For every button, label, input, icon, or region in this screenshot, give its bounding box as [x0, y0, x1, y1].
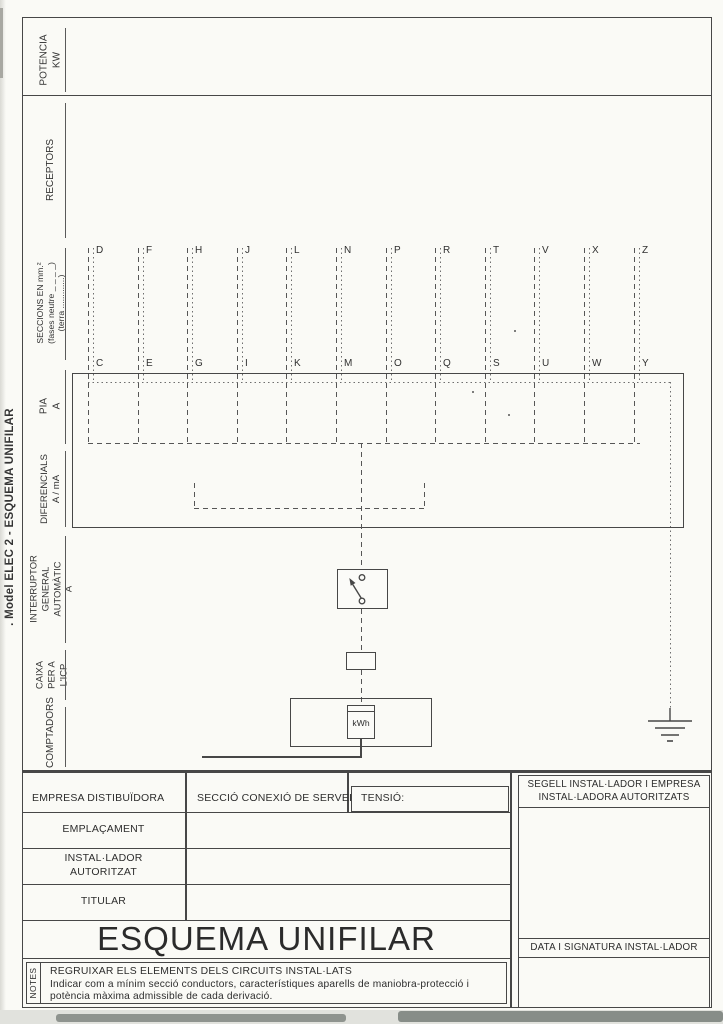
icp-box — [346, 652, 376, 670]
sidebar-bracket — [65, 650, 66, 700]
earth-dotted-line — [391, 248, 392, 382]
circuit-letter: D — [96, 245, 103, 256]
circuit-letter: R — [443, 245, 450, 256]
form-top-border — [22, 770, 712, 773]
service-entry-horizontal-line — [202, 756, 362, 758]
segell-stamp-area — [519, 808, 709, 937]
ground-symbol-icon — [646, 708, 694, 746]
switch-symbol-icon — [338, 570, 386, 607]
installador-autoritzat-label: INSTAL·LADOR AUTORITZAT — [22, 848, 185, 884]
notes-label-divider — [40, 962, 41, 1004]
data-signatura-area — [519, 958, 709, 1006]
circuit-letter: L — [294, 245, 300, 256]
earth-dotted-line — [192, 248, 193, 382]
earth-dotted-line — [242, 248, 243, 382]
differential-bracket-right — [424, 483, 425, 508]
installador-value-area — [186, 849, 510, 883]
sidebar-section-caixa: CAIXA PER A L'ICP — [22, 648, 80, 702]
main-drop-dashed-line — [361, 443, 362, 569]
segell-panel: SEGELL INSTAL·LADOR I EMPRESA INSTAL·LAD… — [518, 775, 710, 1008]
circuit-letter: X — [592, 245, 599, 256]
sidebar-label-caixa: CAIXA PER A L'ICP — [33, 648, 68, 702]
protection-zone-rectangle — [72, 373, 684, 528]
notes-label-wrap: NOTES — [26, 962, 40, 1004]
meter-terminal-line — [348, 706, 374, 712]
earth-dotted-line — [589, 248, 590, 382]
circuit-letter: W — [592, 358, 601, 369]
kwh-meter-label: kWh — [348, 718, 374, 728]
data-signatura-header: DATA I SIGNATURA INSTAL·LADOR — [519, 939, 709, 957]
scan-bottom-bar — [56, 1014, 346, 1022]
circuit-letter: C — [96, 358, 103, 369]
sidebar-section-interruptor: INTERRUPTOR GENERAL AUTOMÀTIC A — [22, 534, 80, 644]
circuit-letter: G — [195, 358, 203, 369]
sidebar-bracket — [65, 28, 66, 92]
scan-smudge — [0, 8, 3, 78]
sidebar-section-receptors: RECEPTORS — [22, 100, 80, 240]
scan-speck — [472, 391, 474, 393]
sidebar-label-interruptor: INTERRUPTOR GENERAL AUTOMÀTIC A — [28, 534, 75, 644]
circuit-letter: V — [542, 245, 549, 256]
notes-heading: REGRUIXAR ELS ELEMENTS DELS CIRCUITS INS… — [50, 966, 352, 977]
empresa-distribuidora-label: EMPRESA DISTIBUÏDORA — [32, 792, 164, 804]
sidebar-section-potencia: POTENCIA KW — [22, 25, 80, 95]
scan-bottom-bar — [398, 1011, 723, 1022]
sidebar-bracket — [65, 248, 66, 360]
circuit-letter: J — [245, 245, 250, 256]
circuit-letter: Z — [642, 245, 648, 256]
circuit-letter: M — [344, 358, 352, 369]
emplacament-value-area — [186, 813, 510, 847]
sidebar-label-diferencials: DIFERENCIALS A / mA — [39, 450, 63, 528]
circuit-letter: F — [146, 245, 152, 256]
circuit-letter: Q — [443, 358, 451, 369]
earth-dotted-line — [539, 248, 540, 382]
sidebar-bracket — [65, 707, 66, 767]
service-entry-vertical-line — [360, 739, 362, 757]
circuit-letter: E — [146, 358, 153, 369]
notes-box: NOTES REGRUIXAR ELS ELEMENTS DELS CIRCUI… — [22, 958, 511, 1008]
kwh-meter-box: kWh — [347, 705, 375, 739]
seccio-conexio-label: SECCIÓ CONEXIÓ DE SERVEI — [197, 792, 352, 804]
circuit-letter: P — [394, 245, 401, 256]
circuit-letter: T — [493, 245, 499, 256]
circuit-letter: H — [195, 245, 202, 256]
sidebar-label-seccions: SECCIONS EN mm.² (fases neutre _ _ _ _) … — [35, 246, 67, 360]
titular-value-area — [186, 885, 510, 919]
earth-dotted-line — [93, 248, 94, 382]
circuit-letter: U — [542, 358, 549, 369]
sidebar-bracket — [65, 536, 66, 643]
phase-bus-dashed-line — [88, 443, 640, 444]
form-main-title: ESQUEMA UNIFILAR — [22, 920, 511, 958]
sidebar-label-comptadors: COMPTADORS — [45, 706, 58, 768]
circuit-breaker-box — [337, 569, 388, 609]
notes-label: NOTES — [28, 962, 39, 1004]
earth-dotted-line — [490, 248, 491, 382]
emplacament-label: EMPLAÇAMENT — [22, 812, 185, 848]
sidebar-section-seccions: SECCIONS EN mm.² (fases neutre _ _ _ _) … — [22, 246, 80, 360]
notes-body: Indicar com a mínim secció conductors, c… — [50, 979, 505, 1004]
segell-header: SEGELL INSTAL·LADOR I EMPRESA INSTAL·LAD… — [519, 778, 709, 806]
earth-dotted-line — [143, 248, 144, 382]
earth-dotted-line — [291, 248, 292, 382]
tensio-cell-box: TENSIÓ: — [351, 786, 509, 812]
sidebar-label-potencia: POTENCIA KW — [39, 25, 64, 95]
differential-bracket-bottom — [194, 508, 425, 509]
scan-speck — [514, 330, 516, 332]
potencia-row-divider — [22, 95, 712, 96]
sidebar-bracket — [65, 370, 66, 444]
scan-left-edge — [0, 0, 6, 1024]
circuit-letter: I — [245, 358, 248, 369]
circuit-letter: K — [294, 358, 301, 369]
earth-dotted-line — [639, 248, 640, 382]
circuit-letter: S — [493, 358, 500, 369]
sidebar-section-comptadors: COMPTADORS — [22, 706, 80, 768]
sidebar-label-receptors: RECEPTORS — [45, 100, 58, 240]
circuit-letter: N — [344, 245, 351, 256]
circuit-letter: Y — [642, 358, 649, 369]
sidebar-label-pia: PIA A — [39, 368, 64, 444]
earth-dotted-line — [440, 248, 441, 382]
sidebar-bracket — [65, 103, 66, 238]
titular-label: TITULAR — [22, 884, 185, 920]
tensio-label: TENSIÓ: — [361, 792, 404, 804]
circuit-letter: O — [394, 358, 402, 369]
earth-dotted-line — [341, 248, 342, 382]
differential-bracket-left — [194, 483, 195, 508]
scanned-form-sheet: . Model ELEC 2 - ESQUEMA UNIFILAR POTENC… — [0, 0, 723, 1024]
main-drop-dashed-line — [361, 609, 362, 652]
sidebar-bracket — [65, 451, 66, 527]
scan-speck — [508, 414, 510, 416]
